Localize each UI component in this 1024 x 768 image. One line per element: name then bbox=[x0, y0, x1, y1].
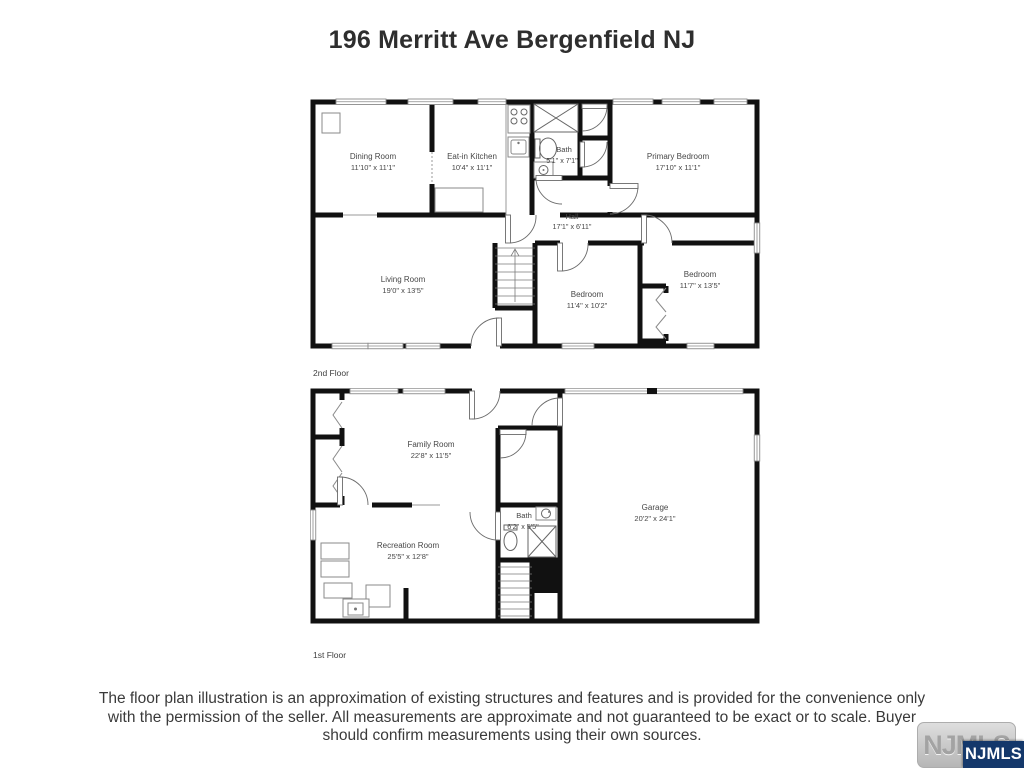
under-stair-mass bbox=[532, 558, 558, 593]
second-floor-caption: 2nd Floor bbox=[313, 368, 349, 378]
room-label-bath-1f: Bath bbox=[516, 511, 532, 520]
room-label-hall: Hall bbox=[565, 212, 578, 221]
room-dims-kitchen: 10'4" x 11'1" bbox=[452, 163, 493, 172]
first-floor-caption: 1st Floor bbox=[313, 650, 346, 660]
first-floor-plan: Family Room 22'8" x 11'5" Garage 20'2" x… bbox=[310, 388, 762, 628]
room-label-bath-2f: Bath bbox=[556, 145, 572, 154]
room-label-bedroom3: Bedroom bbox=[684, 270, 717, 279]
room-dims-living: 19'0" x 13'5" bbox=[382, 286, 423, 295]
room-dims-family: 22'8" x 11'5" bbox=[411, 451, 452, 460]
room-label-kitchen: Eat-in Kitchen bbox=[447, 152, 497, 161]
room-label-garage: Garage bbox=[642, 503, 669, 512]
room-dims-bedroom3: 11'7" x 13'5" bbox=[680, 281, 721, 290]
room-dims-recreation: 25'5" x 12'8" bbox=[387, 552, 428, 561]
room-dims-bath-2f: 5'1" x 7'1" bbox=[546, 156, 578, 165]
room-dims-bedroom2: 11'4" x 10'2" bbox=[567, 301, 608, 310]
floor-plan-page: 196 Merritt Ave Bergenfield NJ bbox=[0, 0, 1024, 768]
room-label-recreation: Recreation Room bbox=[377, 541, 440, 550]
room-dims-primary: 17'10" x 11'1" bbox=[656, 163, 701, 172]
dining-window-seat bbox=[322, 113, 340, 133]
room-label-dining: Dining Room bbox=[350, 152, 397, 161]
njmls-logo-badge-text: NJMLS bbox=[965, 745, 1022, 764]
room-label-family: Family Room bbox=[407, 440, 454, 449]
room-label-living: Living Room bbox=[381, 275, 426, 284]
room-label-primary: Primary Bedroom bbox=[647, 152, 710, 161]
disclaimer-text: The floor plan illustration is an approx… bbox=[88, 690, 936, 746]
page-title: 196 Merritt Ave Bergenfield NJ bbox=[0, 26, 1024, 55]
room-dims-bath-1f: 6'2" x 5'5" bbox=[507, 522, 539, 531]
room-label-bedroom2: Bedroom bbox=[571, 290, 604, 299]
room-dims-hall: 17'1" x 6'11" bbox=[553, 222, 592, 231]
second-floor-plan: Dining Room 11'10" x 11'1" Eat-in Kitche… bbox=[310, 96, 762, 352]
room-dims-dining: 11'10" x 11'1" bbox=[351, 163, 396, 172]
njmls-logo-badge: NJMLS bbox=[963, 741, 1024, 768]
room-dims-garage: 20'2" x 24'1" bbox=[634, 514, 675, 523]
